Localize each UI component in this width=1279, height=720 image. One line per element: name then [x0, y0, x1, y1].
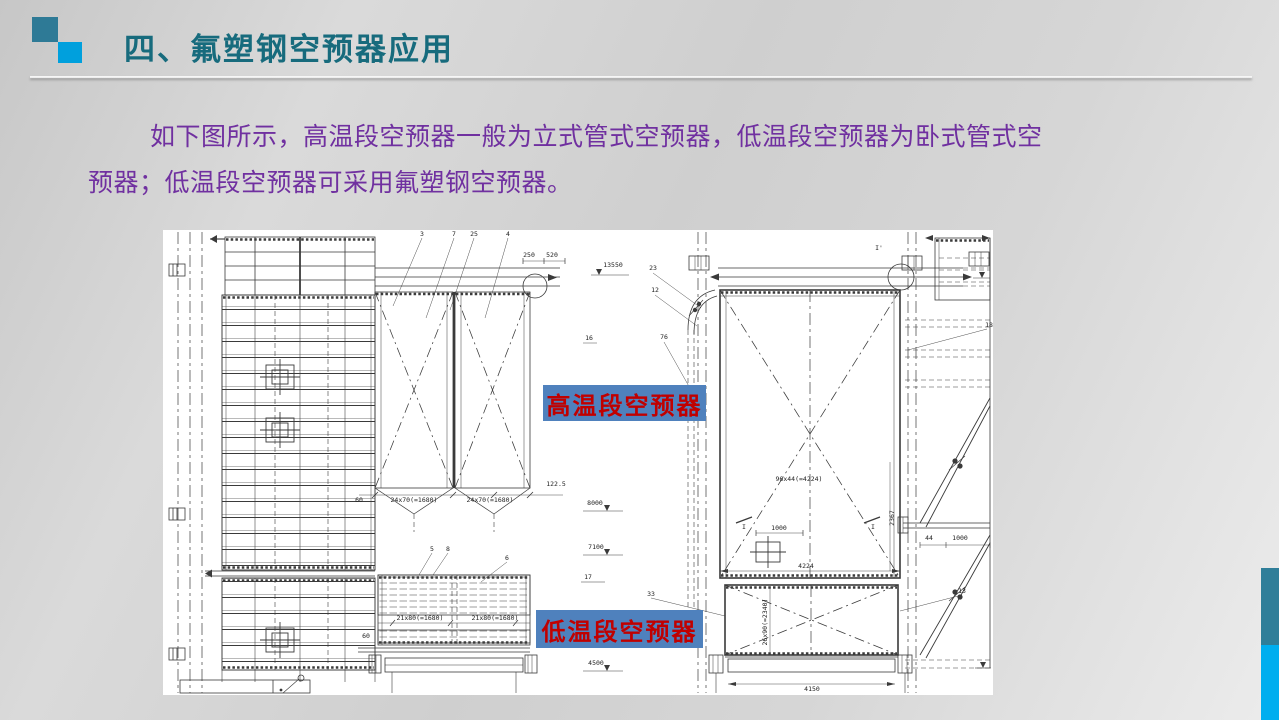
svg-text:21x80(=1680): 21x80(=1680) [472, 614, 519, 622]
svg-text:13550: 13550 [603, 261, 623, 269]
svg-text:60: 60 [362, 632, 370, 640]
svg-text:12: 12 [651, 286, 659, 294]
deco-square-blue-icon [58, 42, 82, 63]
svg-text:25: 25 [470, 230, 478, 238]
svg-text:122.5: 122.5 [546, 480, 566, 488]
svg-text:17: 17 [584, 573, 592, 581]
body-paragraph: 如下图所示，高温段空预器一般为立式管式空预器，低温段空预器为卧式管式空 预器；低… [88, 114, 1148, 206]
svg-text:24x70(=1680): 24x70(=1680) [467, 496, 514, 504]
right-duct-column [898, 235, 991, 668]
svg-text:I: I [742, 523, 746, 531]
svg-text:24x70(=1680): 24x70(=1680) [391, 496, 438, 504]
svg-text:I': I' [875, 244, 883, 252]
svg-text:250: 250 [523, 251, 535, 259]
svg-text:96x44(=4224): 96x44(=4224) [776, 475, 823, 483]
svg-text:8000: 8000 [587, 499, 603, 507]
svg-text:2367: 2367 [888, 510, 896, 526]
svg-text:76: 76 [660, 333, 668, 341]
svg-text:3: 3 [420, 230, 424, 238]
edge-accent-teal [1261, 568, 1279, 645]
svg-text:4224: 4224 [798, 562, 814, 570]
svg-text:6: 6 [505, 554, 509, 562]
svg-text:44: 44 [925, 534, 933, 542]
svg-text:16: 16 [585, 334, 593, 342]
svg-text:4500: 4500 [588, 659, 604, 667]
svg-text:18: 18 [985, 321, 993, 329]
svg-text:4150: 4150 [804, 685, 820, 693]
svg-text:60: 60 [355, 496, 363, 504]
body-line-2: 预器；低温段空预器可采用氟塑钢空预器。 [88, 160, 1148, 206]
svg-text:4: 4 [506, 230, 510, 238]
svg-text:1000: 1000 [952, 534, 968, 542]
svg-text:520: 520 [546, 251, 558, 259]
deco-square-teal-icon [32, 17, 58, 42]
svg-text:26x90(=2340): 26x90(=2340) [761, 599, 769, 646]
label-low-temp-air-preheater: 低温段空预器 [536, 610, 703, 648]
svg-text:8: 8 [446, 545, 450, 553]
presentation-slide: 四、氟塑钢空预器应用 如下图所示，高温段空预器一般为立式管式空预器，低温段空预器… [0, 0, 1279, 720]
body-line-1: 如下图所示，高温段空预器一般为立式管式空预器，低温段空预器为卧式管式空 [88, 114, 1148, 160]
svg-text:21x80(=1680): 21x80(=1680) [397, 614, 444, 622]
svg-text:5: 5 [430, 545, 434, 553]
svg-text:33: 33 [647, 590, 655, 598]
label-high-temp-air-preheater: 高温段空预器 [543, 385, 706, 421]
svg-text:23: 23 [649, 264, 657, 272]
svg-text:7100: 7100 [588, 543, 604, 551]
svg-text:1000: 1000 [771, 524, 787, 532]
svg-text:7: 7 [452, 230, 456, 238]
title-divider [30, 76, 1252, 78]
svg-text:I: I [871, 523, 875, 531]
edge-accent-blue [1261, 645, 1279, 720]
page-title: 四、氟塑钢空预器应用 [124, 24, 454, 69]
svg-text:13: 13 [958, 587, 966, 595]
